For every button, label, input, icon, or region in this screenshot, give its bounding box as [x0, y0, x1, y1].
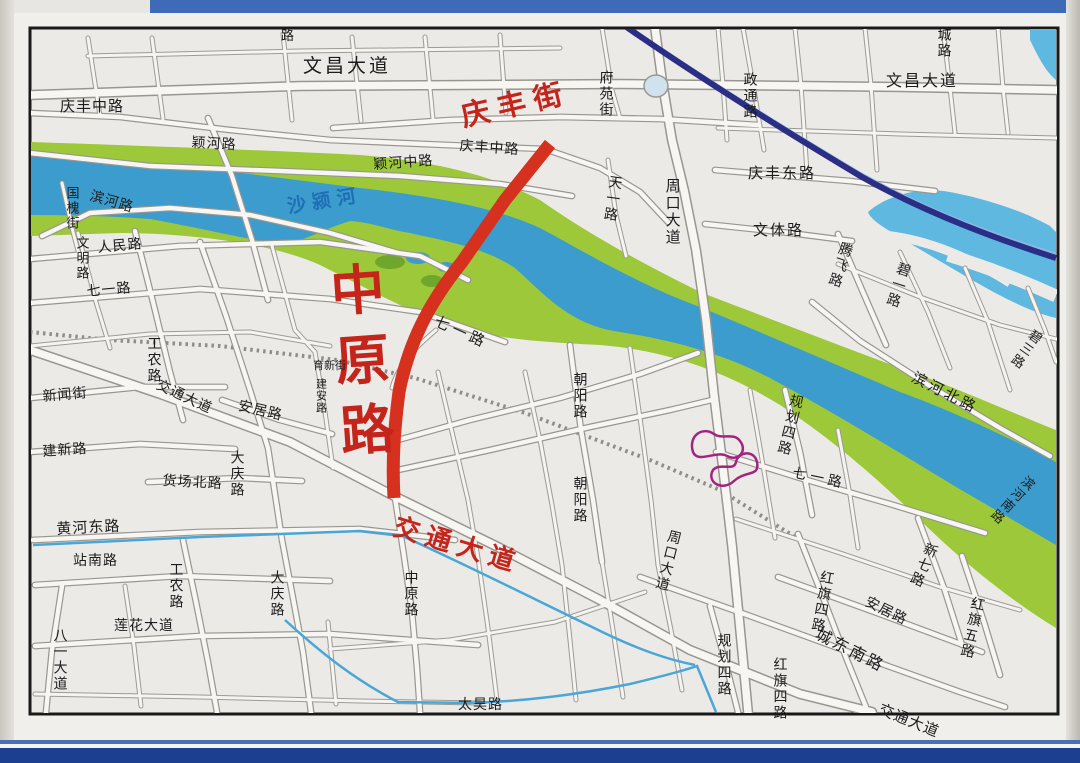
road-label-yuxin: 育新街 — [313, 360, 346, 371]
road-label-hongqi4-s: 红旗四路 — [772, 657, 787, 721]
road-label-qingfeng-east: 庆丰东路 — [748, 166, 816, 182]
road-label-daqing-n: 大庆路 — [229, 450, 244, 498]
road-label-wenchang-e: 文昌大道 — [886, 73, 958, 90]
road-label-gongnong-n: 工农路 — [146, 336, 161, 384]
photo-left-edge — [0, 0, 14, 763]
road-label-taihao: 太昊路 — [458, 698, 503, 713]
photo-top-strip — [0, 0, 1080, 13]
road-label-fuyuan: 府苑街 — [598, 70, 613, 118]
road-label-qingfengzhong-w: 庆丰中路 — [60, 99, 124, 115]
road-label-yinghe: 颖河路 — [191, 136, 237, 153]
photo-right-edge — [1066, 0, 1080, 763]
road-label-guohuai: 国槐街 — [64, 186, 78, 231]
road-label-zhannan: 站南路 — [73, 554, 118, 569]
park-pond-fuyuan — [644, 75, 668, 97]
road-label-lianhua: 莲花大道 — [114, 619, 174, 634]
road-label-huochang-north: 货场北路 — [162, 474, 223, 492]
frame-bottom-stripe-navy — [0, 748, 1080, 763]
road-label-cheng: 城路 — [936, 27, 951, 59]
road-label-guihua4-s: 规划四路 — [716, 633, 731, 697]
road-label-huanghe-east: 黄河东路 — [56, 519, 121, 538]
road-label-daqing-s: 大庆路 — [269, 570, 284, 618]
road-label-zhoukou-n: 周口大道 — [664, 178, 680, 246]
road-label-bayi: 八一大道 — [52, 628, 67, 692]
road-label-jianxin: 建新路 — [42, 442, 88, 460]
road-label-jianan: 建安路 — [315, 378, 326, 414]
road-label-wenti: 文体路 — [753, 223, 804, 239]
road-label-wenming: 文明路 — [74, 236, 88, 281]
road-label-chaoyang-s: 朝阳路 — [572, 476, 587, 524]
road-label-wenchang-w: 文昌大道 — [303, 57, 391, 77]
road-label-zhongyuan-s: 中原路 — [403, 570, 418, 618]
road-label-gongnong-s: 工农路 — [168, 562, 183, 610]
road-label-chaoyang-n: 朝阳路 — [572, 372, 587, 420]
map-photo: 庆丰街 中原路 交通大道 沙颍河 文昌大道 文昌大道 庆丰中路 庆丰中路 颖河路… — [0, 0, 1080, 763]
road-label-top-partial: 路 — [281, 30, 295, 44]
road-label-zhengtong: 政通路 — [742, 72, 757, 120]
